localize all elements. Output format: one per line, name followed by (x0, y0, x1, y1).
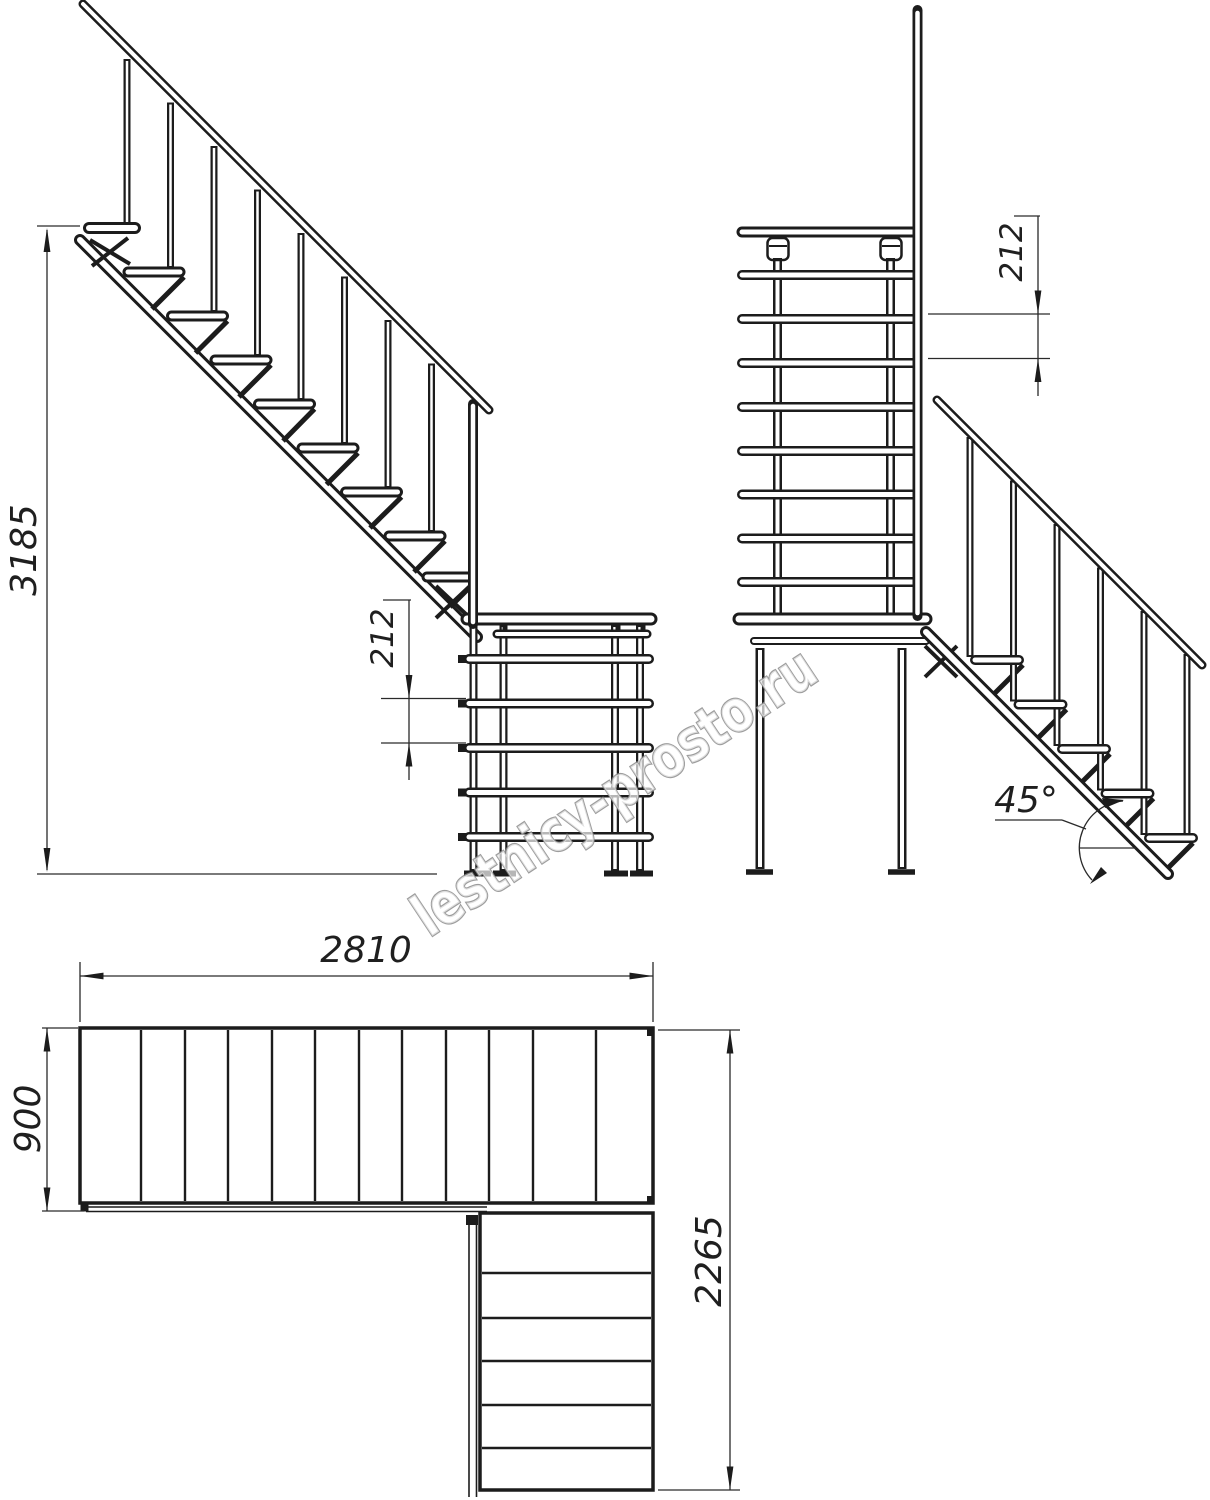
dim-label-total-height: 3185 (4, 504, 45, 596)
dim-label-riser-right: 212 (994, 222, 1030, 281)
dim-label-plan-width: 900 (8, 1085, 49, 1154)
plan-view (80, 1028, 654, 1497)
dimension-212-left: 212 (365, 600, 466, 780)
dimension-3185: 3185 (4, 226, 80, 872)
lower-flight-side-view (926, 400, 1202, 874)
dimension-212-right: 212 (928, 216, 1050, 396)
tread-struts (90, 238, 474, 618)
treads (89, 228, 471, 577)
plan-lower-flight-lines (482, 1273, 651, 1448)
balusters (127, 59, 432, 532)
technical-drawing-page: 3185 212 212 45° 2810 (0, 0, 1210, 1500)
side-elevation-view (37, 4, 653, 874)
post-cap (881, 238, 902, 260)
dim-label-angle: 45° (994, 780, 1058, 821)
dimension-900: 900 (8, 1028, 84, 1211)
stair-drawing: 3185 212 212 45° 2810 (0, 0, 1210, 1500)
dimension-2810: 2810 (80, 930, 653, 1022)
dim-label-flight-length: 2265 (689, 1215, 730, 1307)
plan-tread-lines (141, 1030, 596, 1201)
dimension-2265: 2265 (658, 1030, 740, 1490)
post-cap (768, 238, 789, 260)
front-elevation-view (739, 10, 1202, 874)
dim-label-plan-length: 2810 (320, 930, 412, 971)
dim-label-riser-left: 212 (365, 608, 401, 667)
